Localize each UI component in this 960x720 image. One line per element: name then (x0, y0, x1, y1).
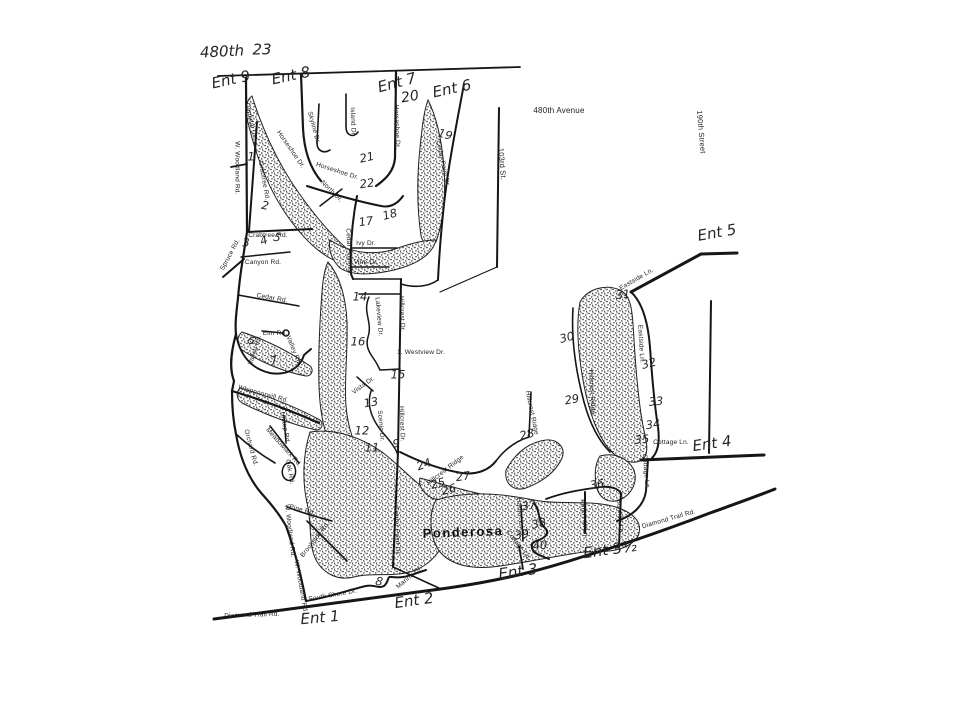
header-highway-label: 480th (200, 43, 245, 60)
road-label-cedar-point-dr: Cedar Point Dr. (434, 140, 450, 188)
lot-number-18: 18 (381, 208, 398, 223)
lake-name-label: Ponderosa (422, 524, 503, 540)
road-label-island-dr: Island Dr. (348, 107, 356, 137)
lot-number-20: 20 (400, 89, 420, 106)
road-label-diamond-trail-rd: Diamond Trail Rd. (224, 612, 280, 620)
labels-layer: 480th 23 Ponderosa Ent 9Ent 8Ent 7Ent 6E… (0, 0, 960, 720)
lot-number-7: 7 (269, 354, 279, 367)
entrance-label-ent-3: Ent 3 (498, 562, 539, 582)
road-label-pine-rd: Pine Rd. (288, 504, 315, 517)
road-label-lakeview-dr: Lakeview Dr. (373, 297, 383, 337)
road-label-knob-hill-ln: Knob Hill Ln. (578, 499, 588, 539)
road-label-skyline-dr: Skyline Dr. (306, 111, 321, 145)
road-label-horseshoe-dr: Horseshoe Dr. (315, 162, 359, 182)
lot-number-16: 16 (351, 336, 366, 348)
road-label-horseshoe-dr: Horseshoe Dr. (275, 130, 306, 170)
lot-number-11: 11 (365, 442, 380, 454)
road-label-marina-dr: Marina Dr. (396, 565, 425, 591)
lot-number-13: 13 (363, 396, 379, 410)
entrance-label-ent-6: Ent 6 (431, 78, 472, 101)
road-label-w-woodland-rd: W. Woodland Rd. (233, 141, 240, 194)
lot-number-34: 34 (645, 418, 661, 431)
lot-number-17: 17 (358, 215, 374, 228)
road-label-190th-street: 190th Street (695, 110, 706, 154)
road-label-horseshoe-dr: Horseshoe Dr. (392, 105, 400, 149)
lot-number-1: 1 (247, 151, 254, 163)
lot-number-37: 37 (521, 499, 537, 513)
road-label-103rd-st: 103rd St. (497, 148, 507, 181)
lot-number-14: 14 (353, 291, 368, 303)
road-label-eastside-ln: Eastside Ln. (636, 325, 644, 363)
header-route-number: 23 (252, 43, 271, 58)
road-label-480th-avenue: 480th Avenue (533, 107, 584, 115)
road-label-center-point-dr: Center Point Dr. (392, 506, 400, 556)
entrance-label-ent-4: Ent 4 (692, 434, 733, 454)
road-label-crabtree-rd: Crabtree Rd. (248, 233, 288, 240)
road-label-elm-rd: Elm Rd. (263, 331, 288, 338)
road-label-orchard-rd: Orchard Rd. (242, 429, 258, 467)
entrance-label-ent-2: Ent 2 (394, 591, 435, 611)
lot-number-26: 26 (440, 483, 457, 498)
road-label-sunrise-ln: Sunrise Ln. (614, 499, 624, 535)
lot-number-36: 36 (589, 478, 605, 491)
road-label-cedar-rd: Cedar Rd. (256, 293, 288, 305)
lot-number-38: 38 (531, 517, 548, 531)
lot-number-33: 33 (648, 396, 664, 409)
entrance-label-ent-8: Ent 8 (270, 65, 311, 88)
road-label-hillcrest-dr: Hillcrest Dr. (397, 406, 405, 442)
road-label-south-shore-dr: South Shore Dr. (308, 589, 358, 604)
road-label-whippoorwill-rd: Whippoorwill Rd. (237, 385, 289, 405)
entrance-label-ent-9: Ent 9 (210, 69, 251, 92)
road-label-cardinal-dr: Cardinal Dr. (243, 102, 257, 139)
road-label-vista-dr: Vista Dr. (351, 376, 376, 397)
lot-number-21: 21 (359, 151, 376, 165)
map-canvas: 480th 23 Ponderosa Ent 9Ent 8Ent 7Ent 6E… (0, 0, 960, 720)
road-label-cedar-point-dr: Cedar Point Dr. (344, 228, 352, 276)
lot-number-15: 15 (391, 369, 406, 381)
road-label-hillcrest-ridge: Hillcrest Ridge (587, 369, 596, 414)
lot-number-27: 27 (455, 470, 471, 483)
lot-number-8: 8 (374, 576, 383, 589)
road-label-w-woodland-rd: W. Woodland Rd. (292, 560, 308, 614)
road-label-cottage-ln: Cottage Ln. (653, 440, 689, 447)
road-label-eastside-ln: Eastside Ln. (619, 268, 655, 293)
entrance-label-ent-3½: Ent 3½ (582, 539, 637, 561)
entrance-label-ent-5: Ent 5 (696, 222, 737, 244)
lot-number-40: 40 (532, 540, 548, 553)
road-label-vine-dr: Vine Dr. (354, 260, 379, 267)
road-label-hillcrest-dr: Hillcrest Dr. (397, 296, 405, 332)
road-label-spruce-rd: Spruce Rd. (220, 238, 242, 272)
lot-number-22: 22 (359, 177, 375, 190)
road-label-scenic-dr: Scenic Dr. (375, 410, 384, 442)
lot-number-30: 30 (558, 331, 575, 346)
lot-number-2: 2 (260, 200, 269, 213)
road-label-valley-rd: Valley Rd. (284, 335, 302, 366)
road-label-ivy-dr: Ivy Dr. (356, 241, 376, 248)
road-label-diamond-trail-rd: Diamond Trail Rd. (641, 509, 696, 531)
lot-number-24: 24 (415, 457, 433, 473)
road-label-canyon-rd: Canyon Rd. (245, 260, 281, 267)
road-label-1-westview-dr: 1. Westview Dr. (397, 350, 445, 357)
lot-number-12: 12 (355, 425, 370, 437)
road-label-crabtree-rd: Crabtree Rd. (256, 161, 269, 201)
lot-number-29: 29 (564, 393, 580, 407)
road-label-brookside-rd: Brookside Rd. (300, 521, 332, 559)
road-label-north-dr: North Dr. (319, 180, 343, 204)
road-label-harbor-ln: Harbor Ln. (514, 497, 523, 530)
lot-number-35: 35 (634, 434, 650, 447)
road-label-cottage-ln: Cottage Ln. (640, 454, 650, 490)
